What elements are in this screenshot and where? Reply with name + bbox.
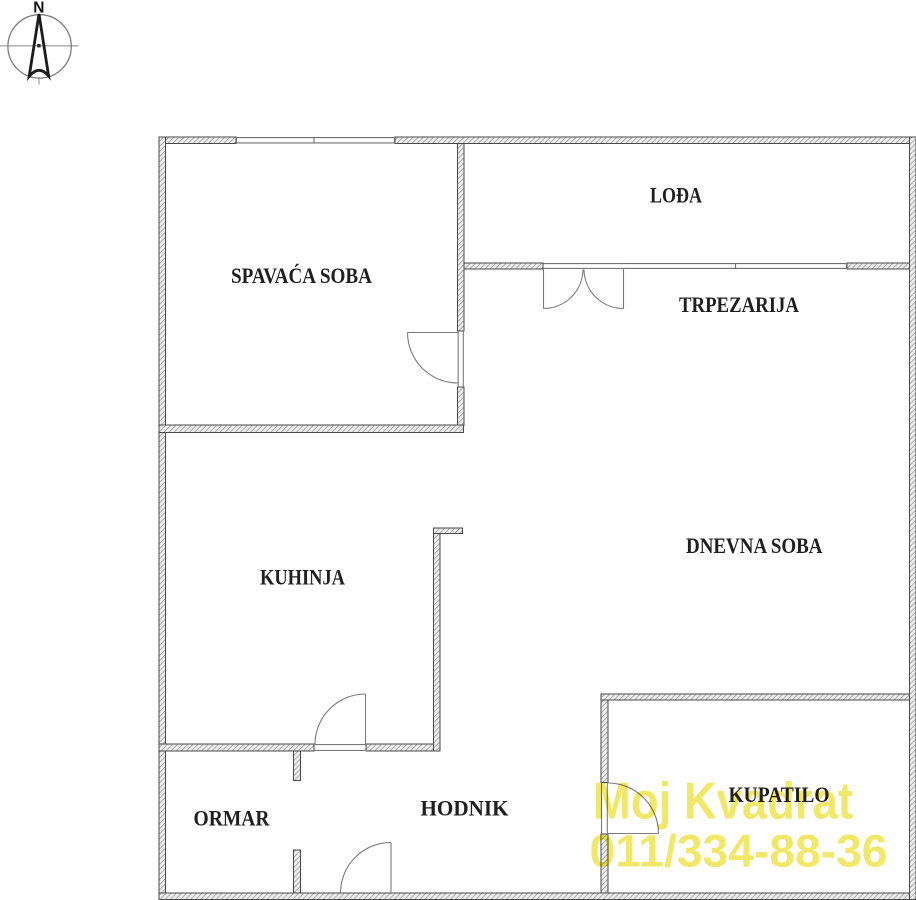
svg-text:DNEVNA SOBA: DNEVNA SOBA [686,533,823,558]
svg-text:KUHINJA: KUHINJA [260,565,345,590]
svg-text:HODNIK: HODNIK [421,796,509,821]
svg-text:TRPEZARIJA: TRPEZARIJA [679,292,799,317]
svg-text:N: N [33,0,44,16]
svg-text:LOĐA: LOĐA [650,183,702,208]
svg-text:011/334-88-36: 011/334-88-36 [590,826,888,877]
svg-text:ORMAR: ORMAR [194,806,271,831]
svg-text:SPAVAĆA SOBA: SPAVAĆA SOBA [231,263,372,288]
svg-text:Moj Kvadrat: Moj Kvadrat [593,773,853,831]
